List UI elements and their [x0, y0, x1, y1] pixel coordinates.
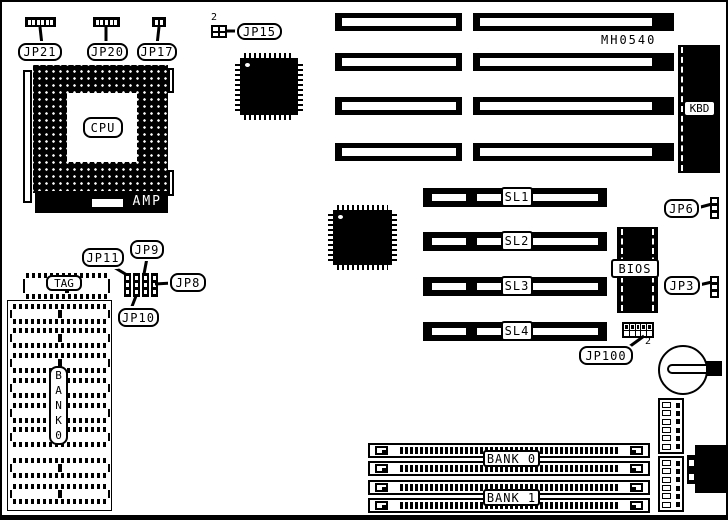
kbd-label: KBD: [684, 101, 715, 116]
power-connector-1: [658, 398, 684, 454]
din-pin-window: [689, 474, 694, 480]
jp17-label: JP17: [137, 43, 177, 61]
board-model-text: MH0540: [601, 33, 656, 47]
chip-pin1-dot: [338, 215, 343, 219]
voltage-regulator: [23, 70, 32, 203]
din-pin-window: [689, 460, 694, 466]
isa-slot-2-8bit: [473, 53, 674, 71]
jp11-label: JP11: [82, 248, 124, 267]
cache-bank0-vertical-label: B A N K 0: [49, 366, 68, 445]
socket-lever-bottom: [168, 170, 174, 196]
din-connector: [695, 445, 728, 493]
isa-slot-1-16bit: [335, 13, 462, 31]
chipset-qfp-2: [328, 205, 397, 270]
jp15-header: [211, 25, 227, 38]
isa-slot-3-8bit: [473, 97, 674, 115]
jp6-header: [710, 197, 719, 219]
sl1-label: SL1: [501, 187, 533, 207]
isa-slot-4-16bit: [335, 143, 462, 161]
jp15-label: JP15: [237, 23, 282, 40]
cache-chip: [10, 457, 110, 479]
bank1-label: BANK 1: [483, 489, 540, 506]
jp100-pin2-marker: 2: [645, 336, 651, 347]
amp-label: AMP: [133, 194, 162, 209]
bank0-label: BANK 0: [483, 450, 540, 467]
jp10-header: [133, 273, 140, 297]
battery-clip-end: [706, 361, 722, 376]
jp3-header: [710, 276, 719, 298]
cache-chip: [10, 483, 110, 505]
chipset-qfp-1: [235, 53, 303, 120]
jp20-header: [93, 17, 120, 27]
jp20-label: JP20: [87, 43, 128, 61]
cpu-label: CPU: [83, 117, 123, 138]
jp11-header: [124, 273, 131, 297]
jp17-header: [152, 17, 166, 27]
power-connector-2: [658, 456, 684, 512]
jp3-label: JP3: [664, 276, 700, 295]
cache-chip: [10, 327, 110, 349]
sl4-label: SL4: [501, 321, 533, 341]
sl2-label: SL2: [501, 231, 533, 251]
jp6-label: JP6: [664, 199, 699, 218]
jp9-label: JP9: [130, 240, 164, 259]
amp-connector: AMP: [35, 191, 168, 213]
jp100-label: JP100: [579, 346, 633, 365]
jp8-label: JP8: [170, 273, 206, 292]
jp15-pin1-marker: 2: [211, 12, 217, 23]
isa-slot-1-8bit: [473, 13, 674, 31]
chip-pin1-dot: [245, 63, 250, 67]
sl3-label: SL3: [501, 276, 533, 296]
bios-label: BIOS: [611, 259, 659, 278]
isa-slot-4-8bit: [473, 143, 674, 161]
jp8-header: [151, 273, 158, 297]
isa-slot-3-16bit: [335, 97, 462, 115]
motherboard-diagram: 2 CPU AMP MH0540 KBD SL1 SL2 SL3 SL4: [0, 0, 728, 520]
jp21-header: [25, 17, 56, 27]
cache-chip: [10, 303, 110, 325]
tag-label: TAG: [46, 275, 82, 291]
amp-connector-key: [92, 199, 123, 207]
jp21-label: JP21: [18, 43, 62, 61]
isa-slot-2-16bit: [335, 53, 462, 71]
jp10-label: JP10: [118, 308, 159, 327]
battery-clip: [667, 364, 709, 374]
jp9-header: [142, 273, 149, 297]
socket-lever-top: [168, 68, 174, 93]
